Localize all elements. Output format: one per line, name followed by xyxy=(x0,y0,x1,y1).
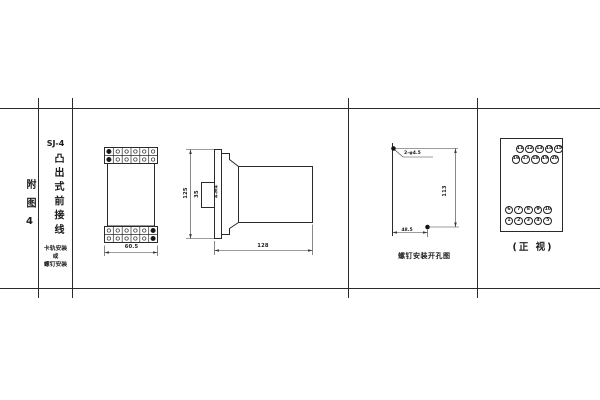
side-height-dim: 125 xyxy=(183,183,189,203)
terminal-8: 8 xyxy=(524,206,533,215)
side-bracket-dim: 35 xyxy=(194,184,200,204)
terminal-3: 3 xyxy=(524,217,533,226)
drill-holes-label: 2-φ4.5 xyxy=(404,151,421,156)
front-width-dim: 60.5 xyxy=(105,244,158,250)
sheet-index-label: 附图4 xyxy=(22,179,37,236)
height-dimension-lines xyxy=(186,150,214,239)
linework xyxy=(0,0,600,400)
drill-height-dim: 113 xyxy=(442,181,448,201)
drill-pattern xyxy=(391,143,459,237)
drill-width-dim: 48.5 xyxy=(396,228,418,233)
terminal-18: 18 xyxy=(531,155,540,164)
mount-type-label: 凸出式前接线 xyxy=(50,153,65,238)
relay-side-view xyxy=(186,150,313,256)
terminal-13: 13 xyxy=(535,145,544,154)
side-screw-label: 4-M4 xyxy=(215,181,220,203)
side-depth-dim: 128 xyxy=(214,243,312,249)
din-rail-bracket xyxy=(202,183,215,208)
drill-view-caption: 螺钉安装开孔图 xyxy=(398,251,451,261)
model-label: SJ-4 xyxy=(39,139,72,148)
terminal-view-caption: (正 视) xyxy=(483,239,583,253)
relay-front-view xyxy=(105,148,158,257)
table-grid xyxy=(0,98,600,298)
mount-hole-bottom xyxy=(425,225,430,230)
drawing-sheet: 附图4 SJ-4 凸出式前接线 卡轨安装 或 螺钉安装 60.5 125 35 … xyxy=(0,0,600,400)
mount-note-line3: 螺钉安装 xyxy=(39,259,72,268)
